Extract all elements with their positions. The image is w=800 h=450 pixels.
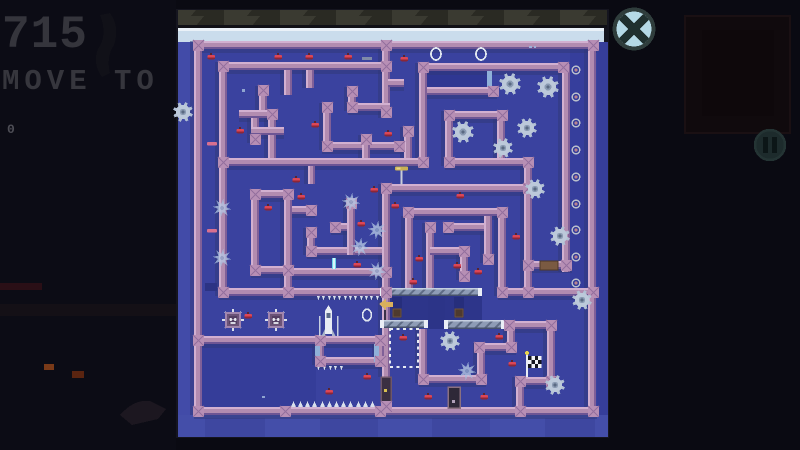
svg-text:0: 0	[7, 122, 15, 137]
svg-text:MOVE TO: MOVE TO	[2, 65, 159, 98]
svg-text:715: 715	[2, 9, 88, 61]
